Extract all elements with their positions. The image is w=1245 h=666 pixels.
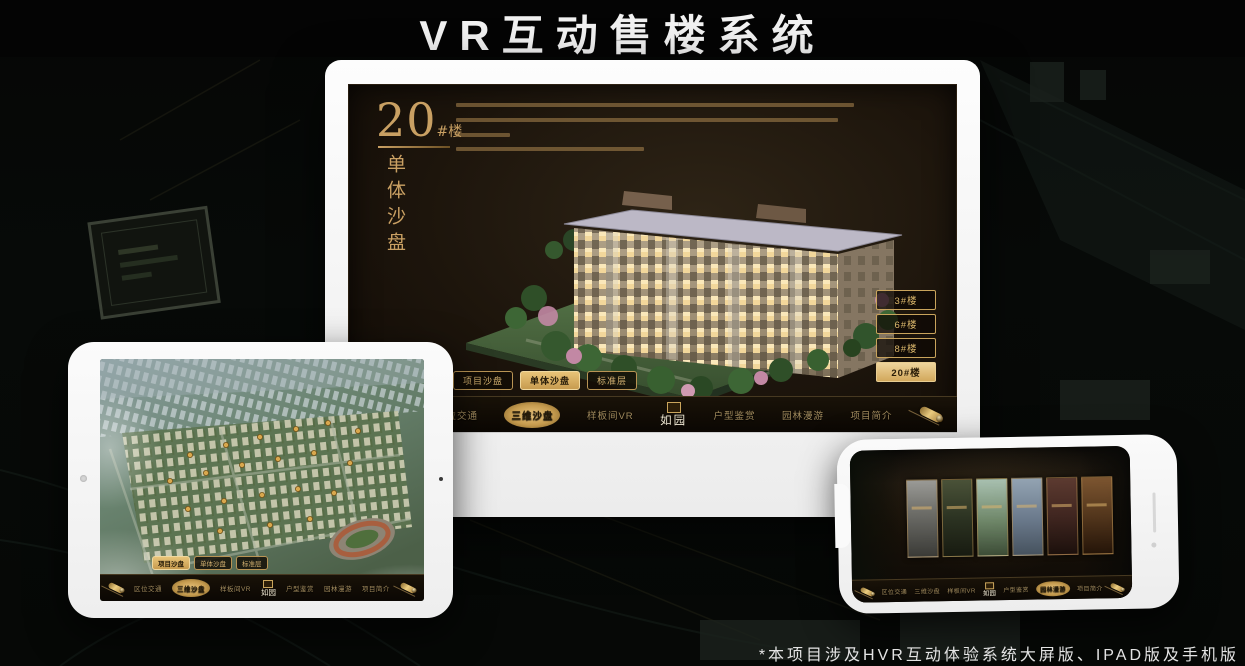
building-number: 20 (376, 93, 437, 147)
front-camera (80, 475, 87, 482)
nav-item-3d-sandbox[interactable]: 三维沙盘 (172, 579, 210, 597)
promo-poster: VR互动售楼系统 20#楼 单体沙盘 (0, 0, 1245, 666)
gallery-card-courtyard[interactable] (941, 479, 973, 558)
scroll-right-icon[interactable] (399, 582, 416, 594)
phone-screen: 区位交通 三维沙盘 样板间VR 如园 户型鉴赏 园林漫游 项目简介 (850, 446, 1133, 603)
nav-item-location[interactable]: 区位交通 (881, 586, 907, 595)
gallery-card-gate[interactable] (1046, 477, 1078, 556)
nav-item-garden-tour[interactable]: 园林漫游 (782, 408, 824, 422)
tab-project-sandbox[interactable]: 项目沙盘 (152, 556, 190, 570)
tab-standard-floor[interactable]: 标准层 (587, 371, 637, 390)
gallery-card-building[interactable] (1011, 477, 1043, 556)
building-button-8[interactable]: 8#楼 (876, 338, 936, 358)
tablet-navbar: 区位交通 三维沙盘 样板间VR 如园 户型鉴赏 园林漫游 项目简介 (100, 574, 424, 601)
tab-project-sandbox[interactable]: 项目沙盘 (453, 371, 513, 390)
gallery-card-lounge[interactable] (1081, 476, 1113, 555)
description-line (456, 118, 838, 122)
seal-icon (667, 402, 681, 413)
tablet-screen: 项目沙盘 单体沙盘 标准层 区位交通 三维沙盘 样板间VR 如园 户型鉴赏 园林… (100, 359, 424, 601)
building-button-3[interactable]: 3#楼 (876, 290, 936, 310)
building-button-6[interactable]: 6#楼 (876, 314, 936, 334)
page-title: VR互动售楼系统 (0, 2, 1245, 63)
description-line (456, 103, 854, 107)
nav-item-floorplan[interactable]: 户型鉴赏 (714, 408, 756, 422)
camera-dot (1151, 542, 1156, 547)
tab-single-sandbox[interactable]: 单体沙盘 (194, 556, 232, 570)
brand-logo-text: 如园 (261, 588, 276, 597)
nav-item-location[interactable]: 区位交通 (134, 583, 162, 593)
tablet-tab-row: 项目沙盘 单体沙盘 标准层 (152, 556, 268, 570)
building-model-20[interactable] (456, 148, 908, 400)
scroll-right-icon[interactable] (918, 405, 944, 424)
home-button[interactable] (439, 477, 443, 481)
nav-item-showroom-vr[interactable]: 样板间VR (220, 583, 251, 593)
phone-notch (834, 484, 850, 548)
nav-item-project-intro[interactable]: 项目简介 (1077, 583, 1103, 592)
nav-item-project-intro[interactable]: 项目简介 (850, 408, 892, 422)
scroll-left-icon[interactable] (860, 586, 875, 596)
phone-navbar: 区位交通 三维沙盘 样板间VR 如园 户型鉴赏 园林漫游 项目简介 (852, 575, 1132, 603)
footnote: *本项目涉及HVR互动体验系统大屏版、IPAD版及手机版 (759, 641, 1239, 665)
building-unit: #楼 (437, 124, 463, 140)
nav-item-project-intro[interactable]: 项目简介 (362, 583, 390, 593)
tab-standard-floor[interactable]: 标准层 (236, 556, 268, 570)
tab-single-sandbox[interactable]: 单体沙盘 (520, 371, 580, 390)
tablet-device: 项目沙盘 单体沙盘 标准层 区位交通 三维沙盘 样板间VR 如园 户型鉴赏 园林… (68, 342, 453, 618)
nav-item-showroom-vr[interactable]: 样板间VR (947, 585, 975, 594)
brand-logo-text: 如园 (660, 413, 687, 427)
brand-logo: 如园 (983, 582, 996, 597)
gallery-card-landscape[interactable] (976, 478, 1008, 557)
brand-logo-text: 如园 (983, 589, 996, 597)
phone-device: 区位交通 三维沙盘 样板间VR 如园 户型鉴赏 园林漫游 项目简介 (837, 434, 1180, 614)
building-button-20[interactable]: 20#楼 (876, 362, 936, 382)
nav-item-showroom-vr[interactable]: 样板间VR (587, 408, 634, 422)
description-line (456, 133, 510, 137)
nav-item-floorplan[interactable]: 户型鉴赏 (286, 583, 314, 593)
scroll-right-icon[interactable] (1110, 582, 1125, 592)
brand-logo: 如园 (660, 402, 687, 427)
nav-item-garden-tour[interactable]: 园林漫游 (324, 583, 352, 593)
scene-gallery (906, 476, 1113, 558)
building-selector: 3#楼 6#楼 8#楼 20#楼 (876, 290, 936, 382)
speaker-slot (1152, 492, 1156, 532)
scroll-left-icon[interactable] (107, 582, 124, 594)
building-heading: 20#楼 单体沙盘 (376, 98, 462, 274)
nav-item-3d-sandbox[interactable]: 三维沙盘 (504, 402, 560, 428)
brand-logo: 如园 (261, 580, 276, 597)
seal-icon (263, 580, 273, 588)
gallery-card-interior[interactable] (906, 479, 938, 558)
nav-item-garden-tour[interactable]: 园林漫游 (1036, 580, 1070, 596)
building-subtitle: 单体沙盘 (382, 154, 409, 274)
nav-item-3d-sandbox[interactable]: 三维沙盘 (914, 586, 940, 595)
nav-item-floorplan[interactable]: 户型鉴赏 (1003, 584, 1029, 593)
desktop-tab-row: 项目沙盘 单体沙盘 标准层 (453, 371, 637, 390)
